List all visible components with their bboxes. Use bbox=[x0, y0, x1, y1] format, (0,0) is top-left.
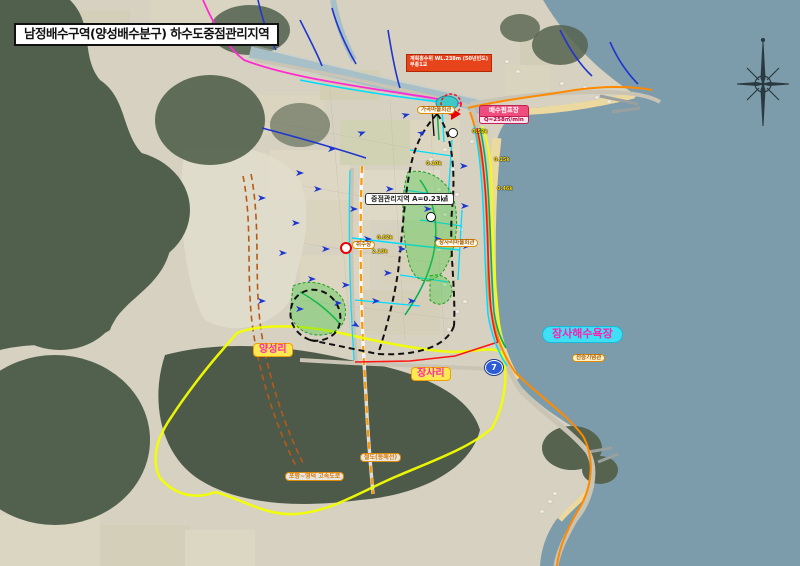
pipe-length-label: 0.52k bbox=[472, 129, 488, 135]
map-canvas bbox=[0, 0, 800, 566]
pump-station-callout: 배수펌프장 Q=258㎥/min bbox=[479, 105, 529, 124]
pipe-length-label: 0.15k bbox=[494, 157, 510, 163]
village-jangsa-label: 장사리 bbox=[411, 367, 451, 381]
map-stage: 남정배수구역(양성배수분구) 하수도중점관리지역 계획홍수위 WL.238m (… bbox=[0, 0, 800, 566]
pump-station-name: 배수펌프장 bbox=[479, 105, 529, 117]
pipe-length-label: 2.13k bbox=[372, 249, 388, 255]
route-7-shield: 7 bbox=[485, 360, 503, 375]
node-marker bbox=[427, 213, 436, 222]
pump-station-capacity: Q=258㎥/min bbox=[479, 117, 529, 124]
flood-level-callout: 계획홍수위 WL.238m (50년빈도) 부흥1교 bbox=[406, 54, 492, 72]
bridge-name: 부흥1교 bbox=[410, 63, 488, 69]
node-marker bbox=[449, 129, 458, 138]
jangsa-beach-label: 장사해수욕장 bbox=[542, 326, 623, 343]
pipe-length-label: 0.46k bbox=[497, 186, 513, 192]
cleared-area bbox=[181, 146, 306, 328]
railway-label: 철도(동해선) bbox=[360, 453, 401, 462]
water-intake-label: 취수장 bbox=[352, 241, 375, 249]
priority-area-label: 중점관리지역 A=0.23㎢ bbox=[365, 193, 454, 205]
victory-memorial-label: 전승기념관 bbox=[572, 354, 605, 362]
map-title: 남정배수구역(양성배수분구) 하수도중점관리지역 bbox=[14, 23, 279, 46]
pipe-length-label: 0.62k bbox=[377, 235, 393, 241]
pipe-length-label: 0.10k bbox=[426, 161, 442, 167]
jangsa-village-hall-label: 장사리마을회관 bbox=[435, 239, 478, 247]
intake-marker bbox=[340, 242, 352, 254]
village-yangseong-label: 양성리 bbox=[253, 343, 293, 357]
gagok-village-hall-label: 가곡마을회관 bbox=[417, 106, 455, 114]
expressway-label: 포항~영덕 고속도로 bbox=[285, 472, 344, 481]
